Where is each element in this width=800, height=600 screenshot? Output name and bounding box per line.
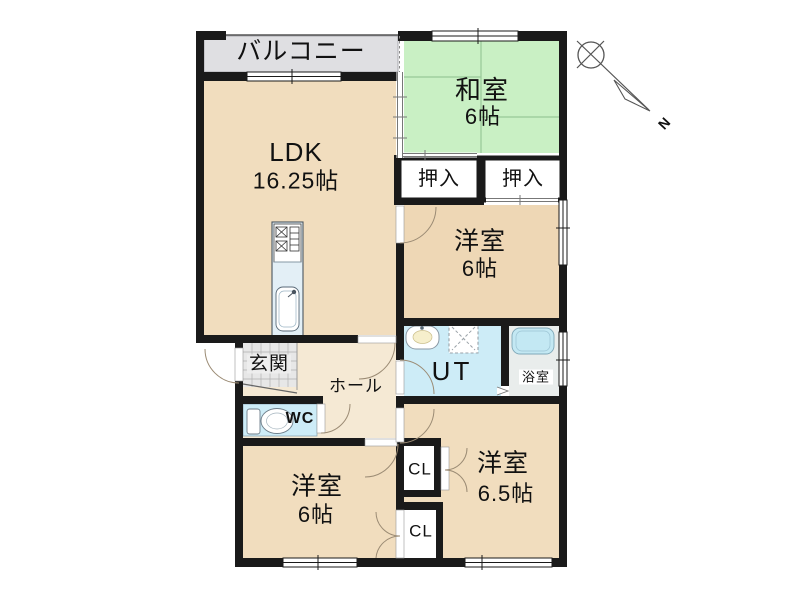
floor-plan-canvas: バルコニー LDK 16.25帖 和室 6帖 押入 押入 洋室 6帖 UT 浴室… bbox=[0, 0, 800, 600]
label-ut: UT bbox=[432, 358, 473, 384]
floor-plan-drawing bbox=[0, 0, 800, 600]
label-ldk: LDK bbox=[269, 139, 323, 165]
label-oshiire-left: 押入 bbox=[418, 169, 460, 189]
label-yoshitsu-br-area: 6.5帖 bbox=[478, 483, 535, 505]
label-yoshitsu-bl-area: 6帖 bbox=[298, 504, 334, 526]
washing-machine-space-icon bbox=[449, 324, 478, 353]
kitchen-sink-icon bbox=[276, 287, 299, 331]
label-oshiire-right: 押入 bbox=[502, 169, 544, 189]
bathtub-icon bbox=[512, 328, 554, 354]
label-cl-top: CL bbox=[408, 461, 432, 478]
entrance-door bbox=[205, 348, 243, 383]
label-yoshitsu-mid-area: 6帖 bbox=[462, 258, 498, 280]
label-yoshitsu-bl: 洋室 bbox=[291, 475, 343, 500]
label-yoshitsu-mid: 洋室 bbox=[454, 230, 506, 255]
bath-folding-door-icon bbox=[497, 387, 508, 395]
label-ldk-area: 16.25帖 bbox=[253, 170, 340, 193]
label-balcony: バルコニー bbox=[236, 40, 366, 65]
kitchen-counter-icon bbox=[272, 222, 303, 337]
washbasin-icon bbox=[406, 326, 439, 349]
label-washitsu-area: 6帖 bbox=[465, 106, 501, 128]
label-yoshitsu-br: 洋室 bbox=[477, 452, 529, 477]
label-cl-bottom: CL bbox=[409, 523, 433, 540]
label-genkan: 玄関 bbox=[247, 355, 291, 374]
label-hall: ホール bbox=[329, 378, 383, 395]
label-wc: WC bbox=[286, 411, 315, 427]
compass-icon bbox=[577, 41, 650, 111]
label-washitsu: 和室 bbox=[455, 77, 509, 103]
label-bath: 浴室 bbox=[519, 370, 553, 385]
